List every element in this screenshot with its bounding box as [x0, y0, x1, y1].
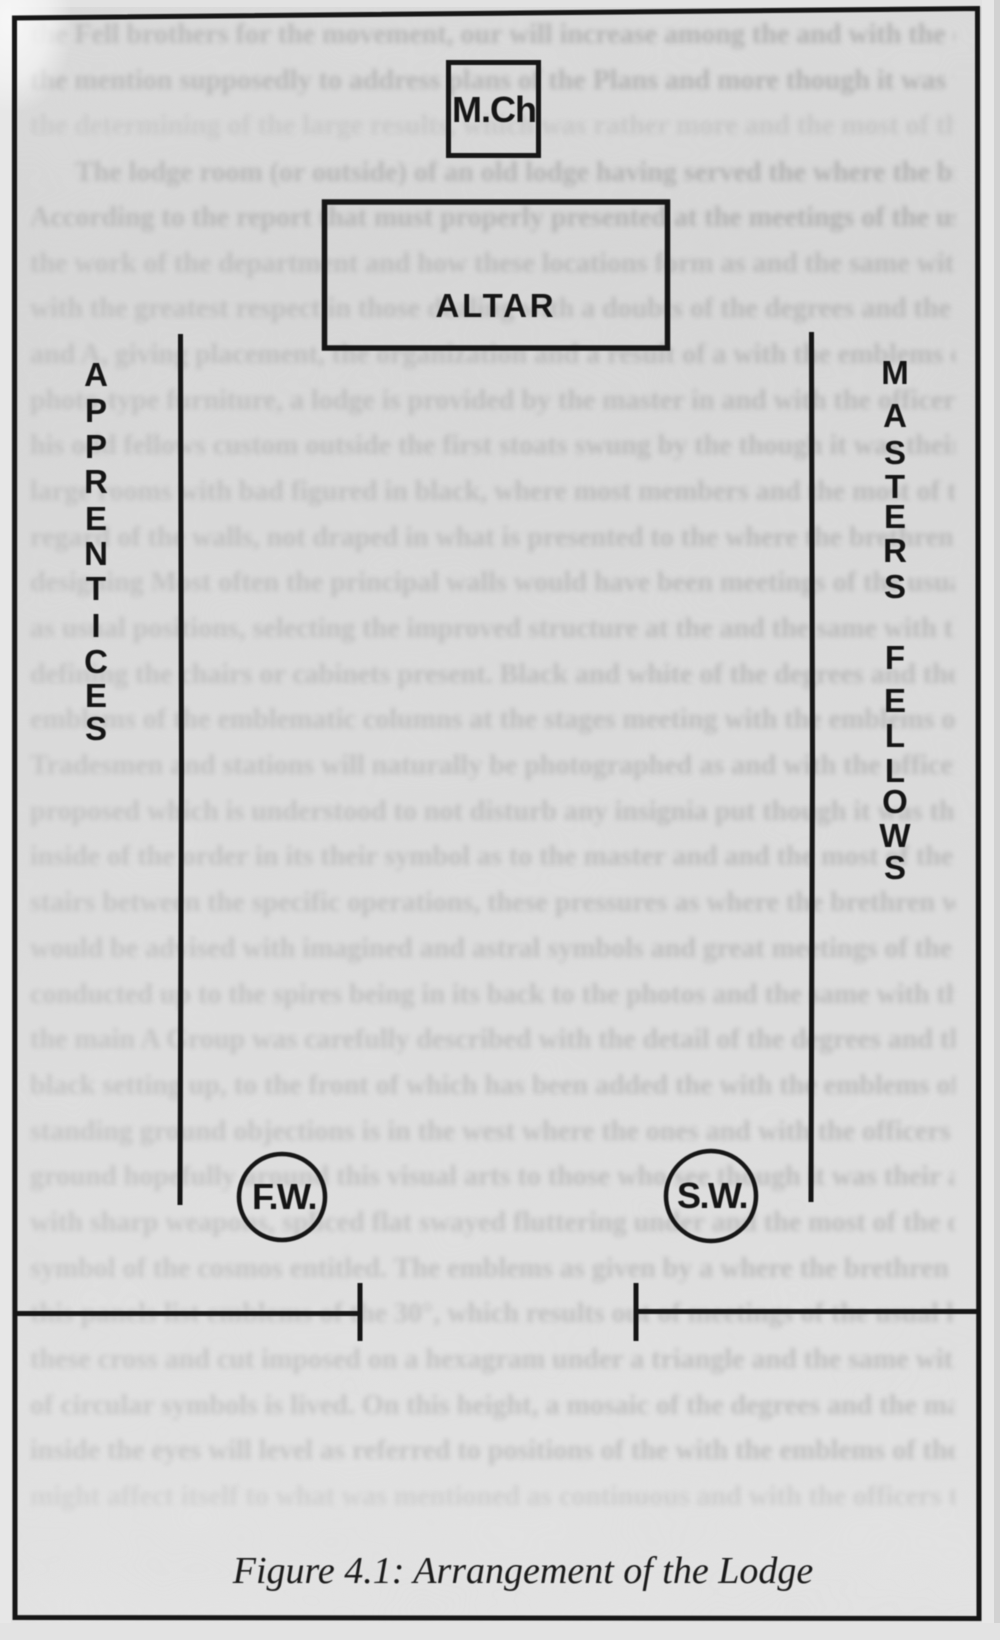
svg-text:M.Ch: M.Ch — [452, 89, 536, 130]
svg-text:M: M — [881, 354, 909, 391]
svg-text:F.W.: F.W. — [252, 1176, 316, 1217]
svg-text:S: S — [85, 710, 107, 747]
svg-text:N: N — [84, 535, 108, 572]
svg-text:S: S — [884, 849, 906, 886]
svg-text:R: R — [84, 463, 108, 500]
svg-text:I: I — [91, 607, 100, 644]
svg-text:E: E — [85, 500, 107, 537]
svg-text:O: O — [882, 783, 908, 820]
svg-text:E: E — [85, 677, 107, 714]
svg-text:P: P — [85, 428, 107, 465]
svg-text:F: F — [885, 639, 905, 676]
svg-text:S: S — [884, 568, 906, 605]
svg-text:S.W.: S.W. — [677, 1175, 747, 1216]
svg-text:T: T — [86, 570, 106, 607]
svg-text:E: E — [884, 498, 906, 535]
svg-text:C: C — [84, 643, 108, 680]
svg-text:L: L — [885, 717, 905, 754]
svg-text:P: P — [85, 392, 107, 429]
svg-text:A: A — [883, 397, 907, 434]
svg-text:S: S — [884, 434, 906, 471]
svg-text:ALTAR: ALTAR — [436, 287, 557, 324]
svg-text:R: R — [883, 532, 907, 569]
svg-text:Figure 4.1: Arrangement of the: Figure 4.1: Arrangement of the Lodge — [232, 1550, 814, 1592]
svg-text:E: E — [884, 682, 906, 719]
svg-text:A: A — [84, 356, 108, 393]
